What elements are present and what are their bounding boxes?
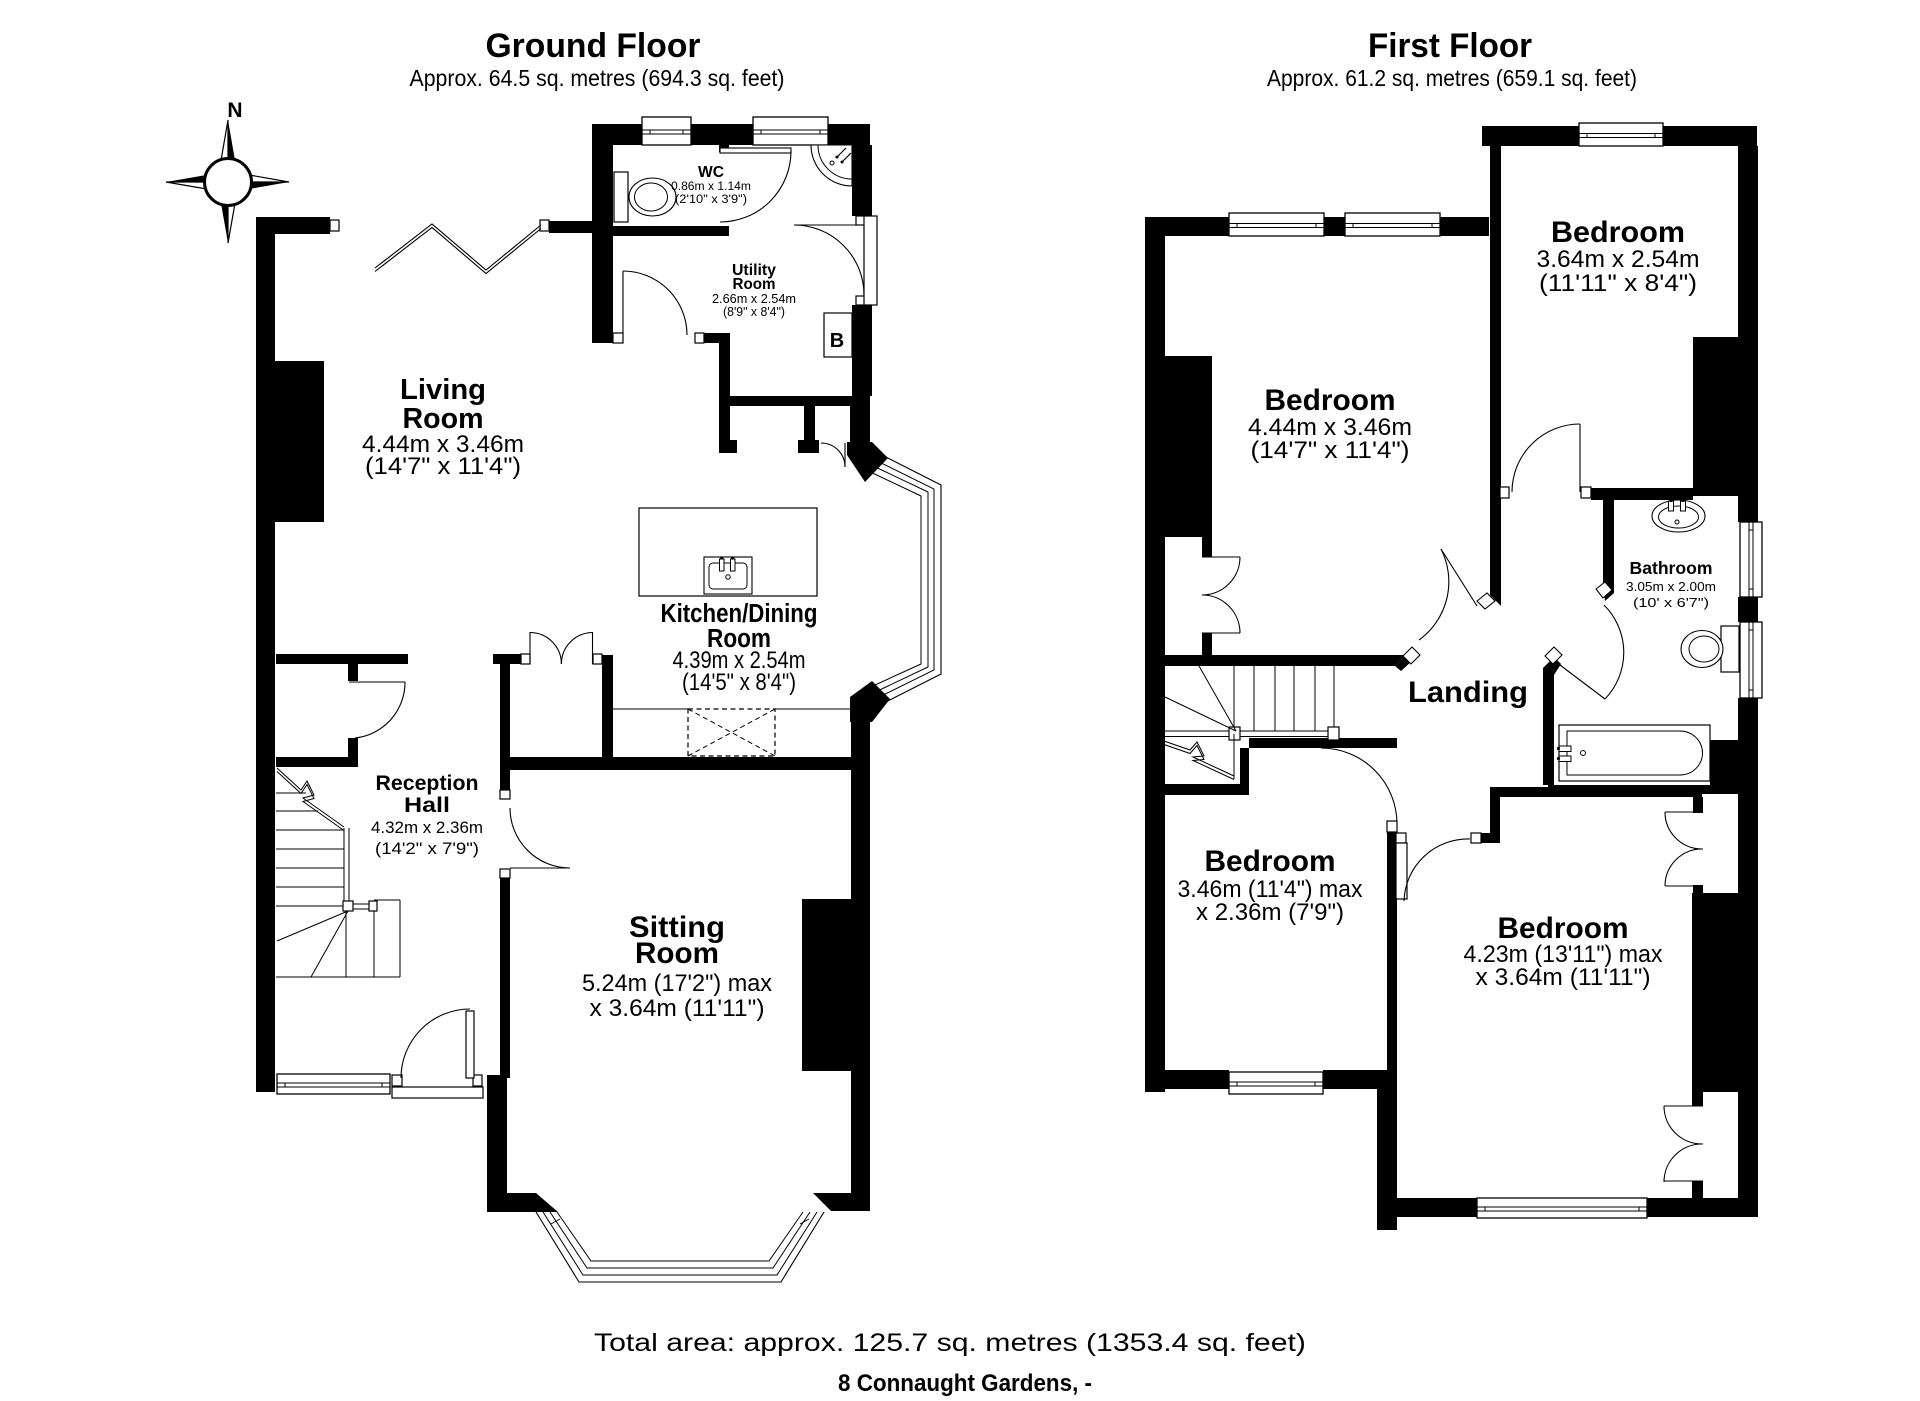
- svg-text:3.05m x 2.00m: 3.05m x 2.00m: [1626, 579, 1716, 594]
- svg-text:(14'5" x 8'4"): (14'5" x 8'4"): [682, 669, 796, 696]
- svg-text:First Floor: First Floor: [1368, 27, 1532, 65]
- svg-text:Hall: Hall: [404, 793, 450, 817]
- svg-text:x 3.64m (11'11"): x 3.64m (11'11"): [590, 995, 765, 1022]
- svg-text:(8'9" x 8'4"): (8'9" x 8'4"): [723, 304, 785, 319]
- svg-text:Approx. 64.5 sq. metres (694.3: Approx. 64.5 sq. metres (694.3 sq. feet): [410, 65, 785, 91]
- svg-text:Approx. 61.2 sq. metres (659.1: Approx. 61.2 sq. metres (659.1 sq. feet): [1267, 65, 1637, 91]
- svg-text:4.32m x 2.36m: 4.32m x 2.36m: [371, 818, 483, 837]
- svg-text:Room: Room: [635, 937, 719, 970]
- svg-text:Bedroom: Bedroom: [1551, 216, 1685, 249]
- svg-text:5.24m (17'2") max: 5.24m (17'2") max: [582, 970, 772, 997]
- svg-text:Bathroom: Bathroom: [1630, 558, 1713, 578]
- svg-text:Reception: Reception: [376, 771, 479, 795]
- svg-text:(14'7" x 11'4"): (14'7" x 11'4"): [365, 453, 521, 480]
- svg-text:8 Connaught Gardens, -: 8 Connaught Gardens, -: [838, 1370, 1092, 1396]
- svg-text:(10' x 6'7"): (10' x 6'7"): [1633, 595, 1709, 610]
- svg-text:Ground Floor: Ground Floor: [486, 27, 701, 65]
- svg-text:x 3.64m (11'11"): x 3.64m (11'11"): [1476, 964, 1651, 991]
- svg-text:Bedroom: Bedroom: [1265, 384, 1396, 417]
- svg-text:(2'10" x 3'9"): (2'10" x 3'9"): [675, 192, 747, 206]
- svg-text:(14'2" x 7'9"): (14'2" x 7'9"): [375, 839, 479, 858]
- svg-text:Living: Living: [400, 374, 486, 406]
- svg-text:3.64m x 2.54m: 3.64m x 2.54m: [1537, 246, 1700, 273]
- svg-text:(11'11" x 8'4"): (11'11" x 8'4"): [1539, 270, 1697, 297]
- svg-text:(14'7" x 11'4"): (14'7" x 11'4"): [1251, 437, 1410, 464]
- svg-text:0.86m x 1.14m: 0.86m x 1.14m: [671, 179, 751, 193]
- svg-text:Bedroom: Bedroom: [1205, 845, 1336, 878]
- svg-text:Kitchen/Dining: Kitchen/Dining: [661, 600, 818, 628]
- svg-text:N: N: [227, 99, 242, 122]
- svg-text:x 2.36m (7'9"): x 2.36m (7'9"): [1196, 899, 1344, 926]
- svg-text:B: B: [830, 330, 844, 352]
- svg-text:Total area: approx. 125.7 sq.: Total area: approx. 125.7 sq. metres (13…: [594, 1329, 1306, 1357]
- svg-text:Landing: Landing: [1408, 676, 1528, 709]
